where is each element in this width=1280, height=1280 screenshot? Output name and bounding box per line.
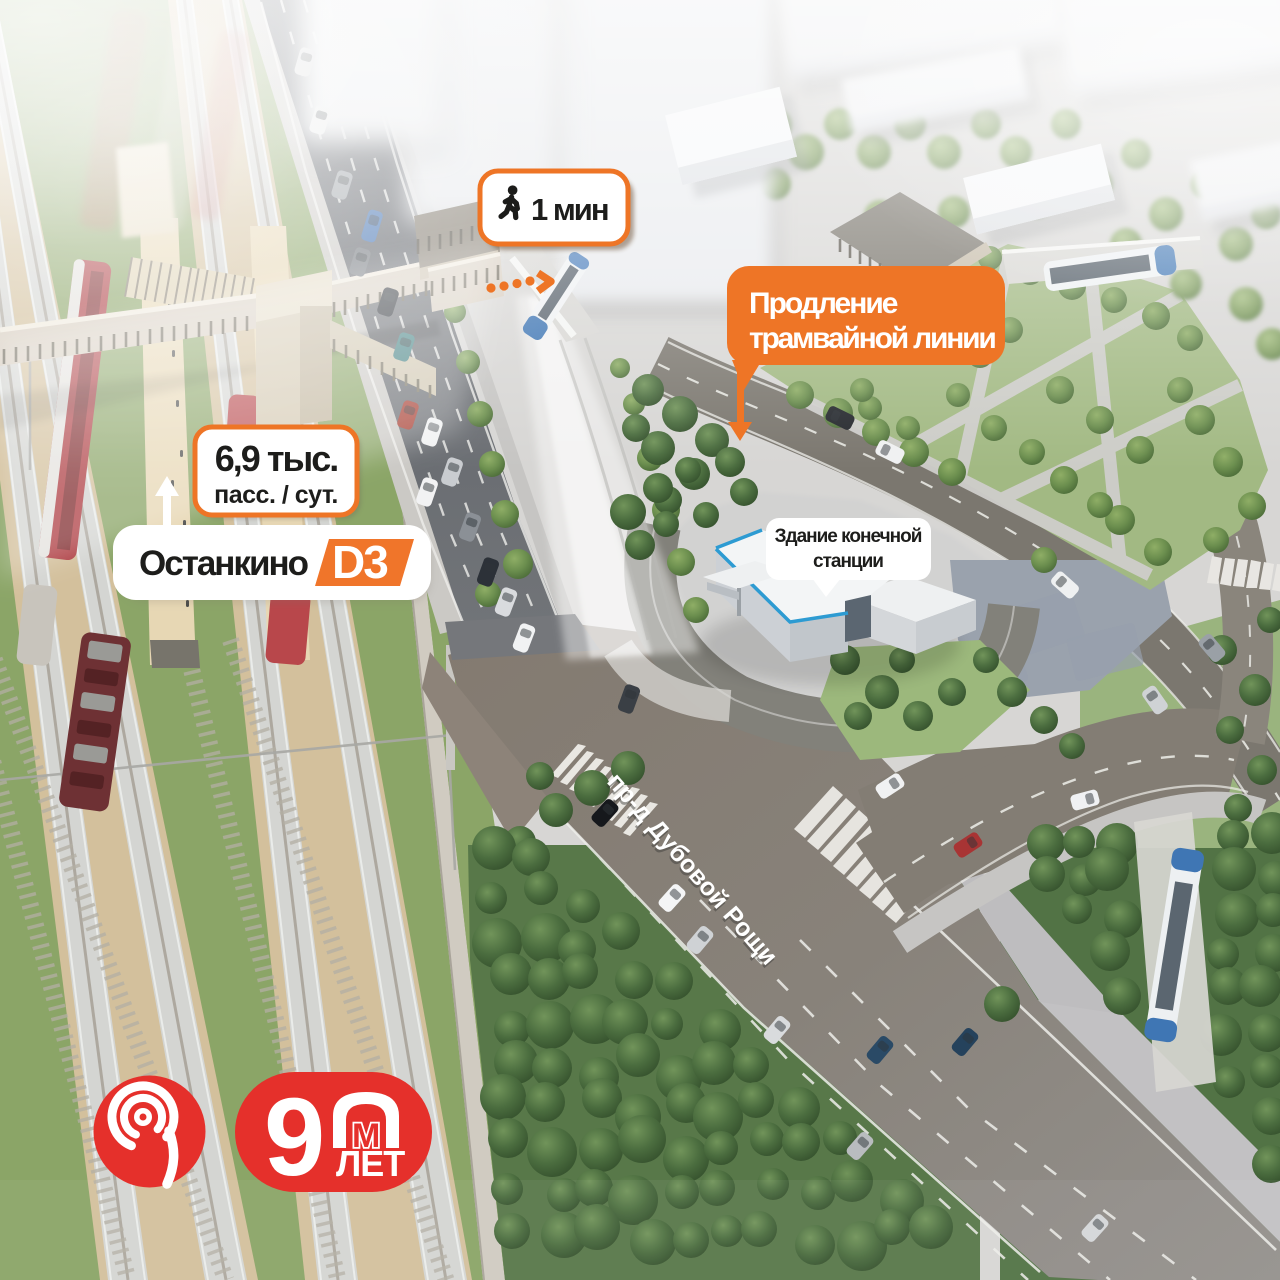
svg-text:1 мин: 1 мин [531, 192, 608, 227]
svg-text:пасс. / сут.: пасс. / сут. [214, 481, 338, 509]
svg-text:D3: D3 [332, 536, 387, 588]
svg-text:6,9 тыс.: 6,9 тыс. [215, 438, 337, 479]
svg-text:9: 9 [264, 1076, 325, 1199]
svg-text:станции: станции [813, 551, 883, 572]
svg-text:трамвайной линии: трамвайной линии [749, 322, 995, 355]
svg-text:Продление: Продление [749, 287, 898, 320]
svg-text:Здание конечной: Здание конечной [775, 526, 922, 547]
svg-text:ЛЕТ: ЛЕТ [336, 1143, 405, 1184]
svg-text:Останкино: Останкино [139, 544, 309, 583]
